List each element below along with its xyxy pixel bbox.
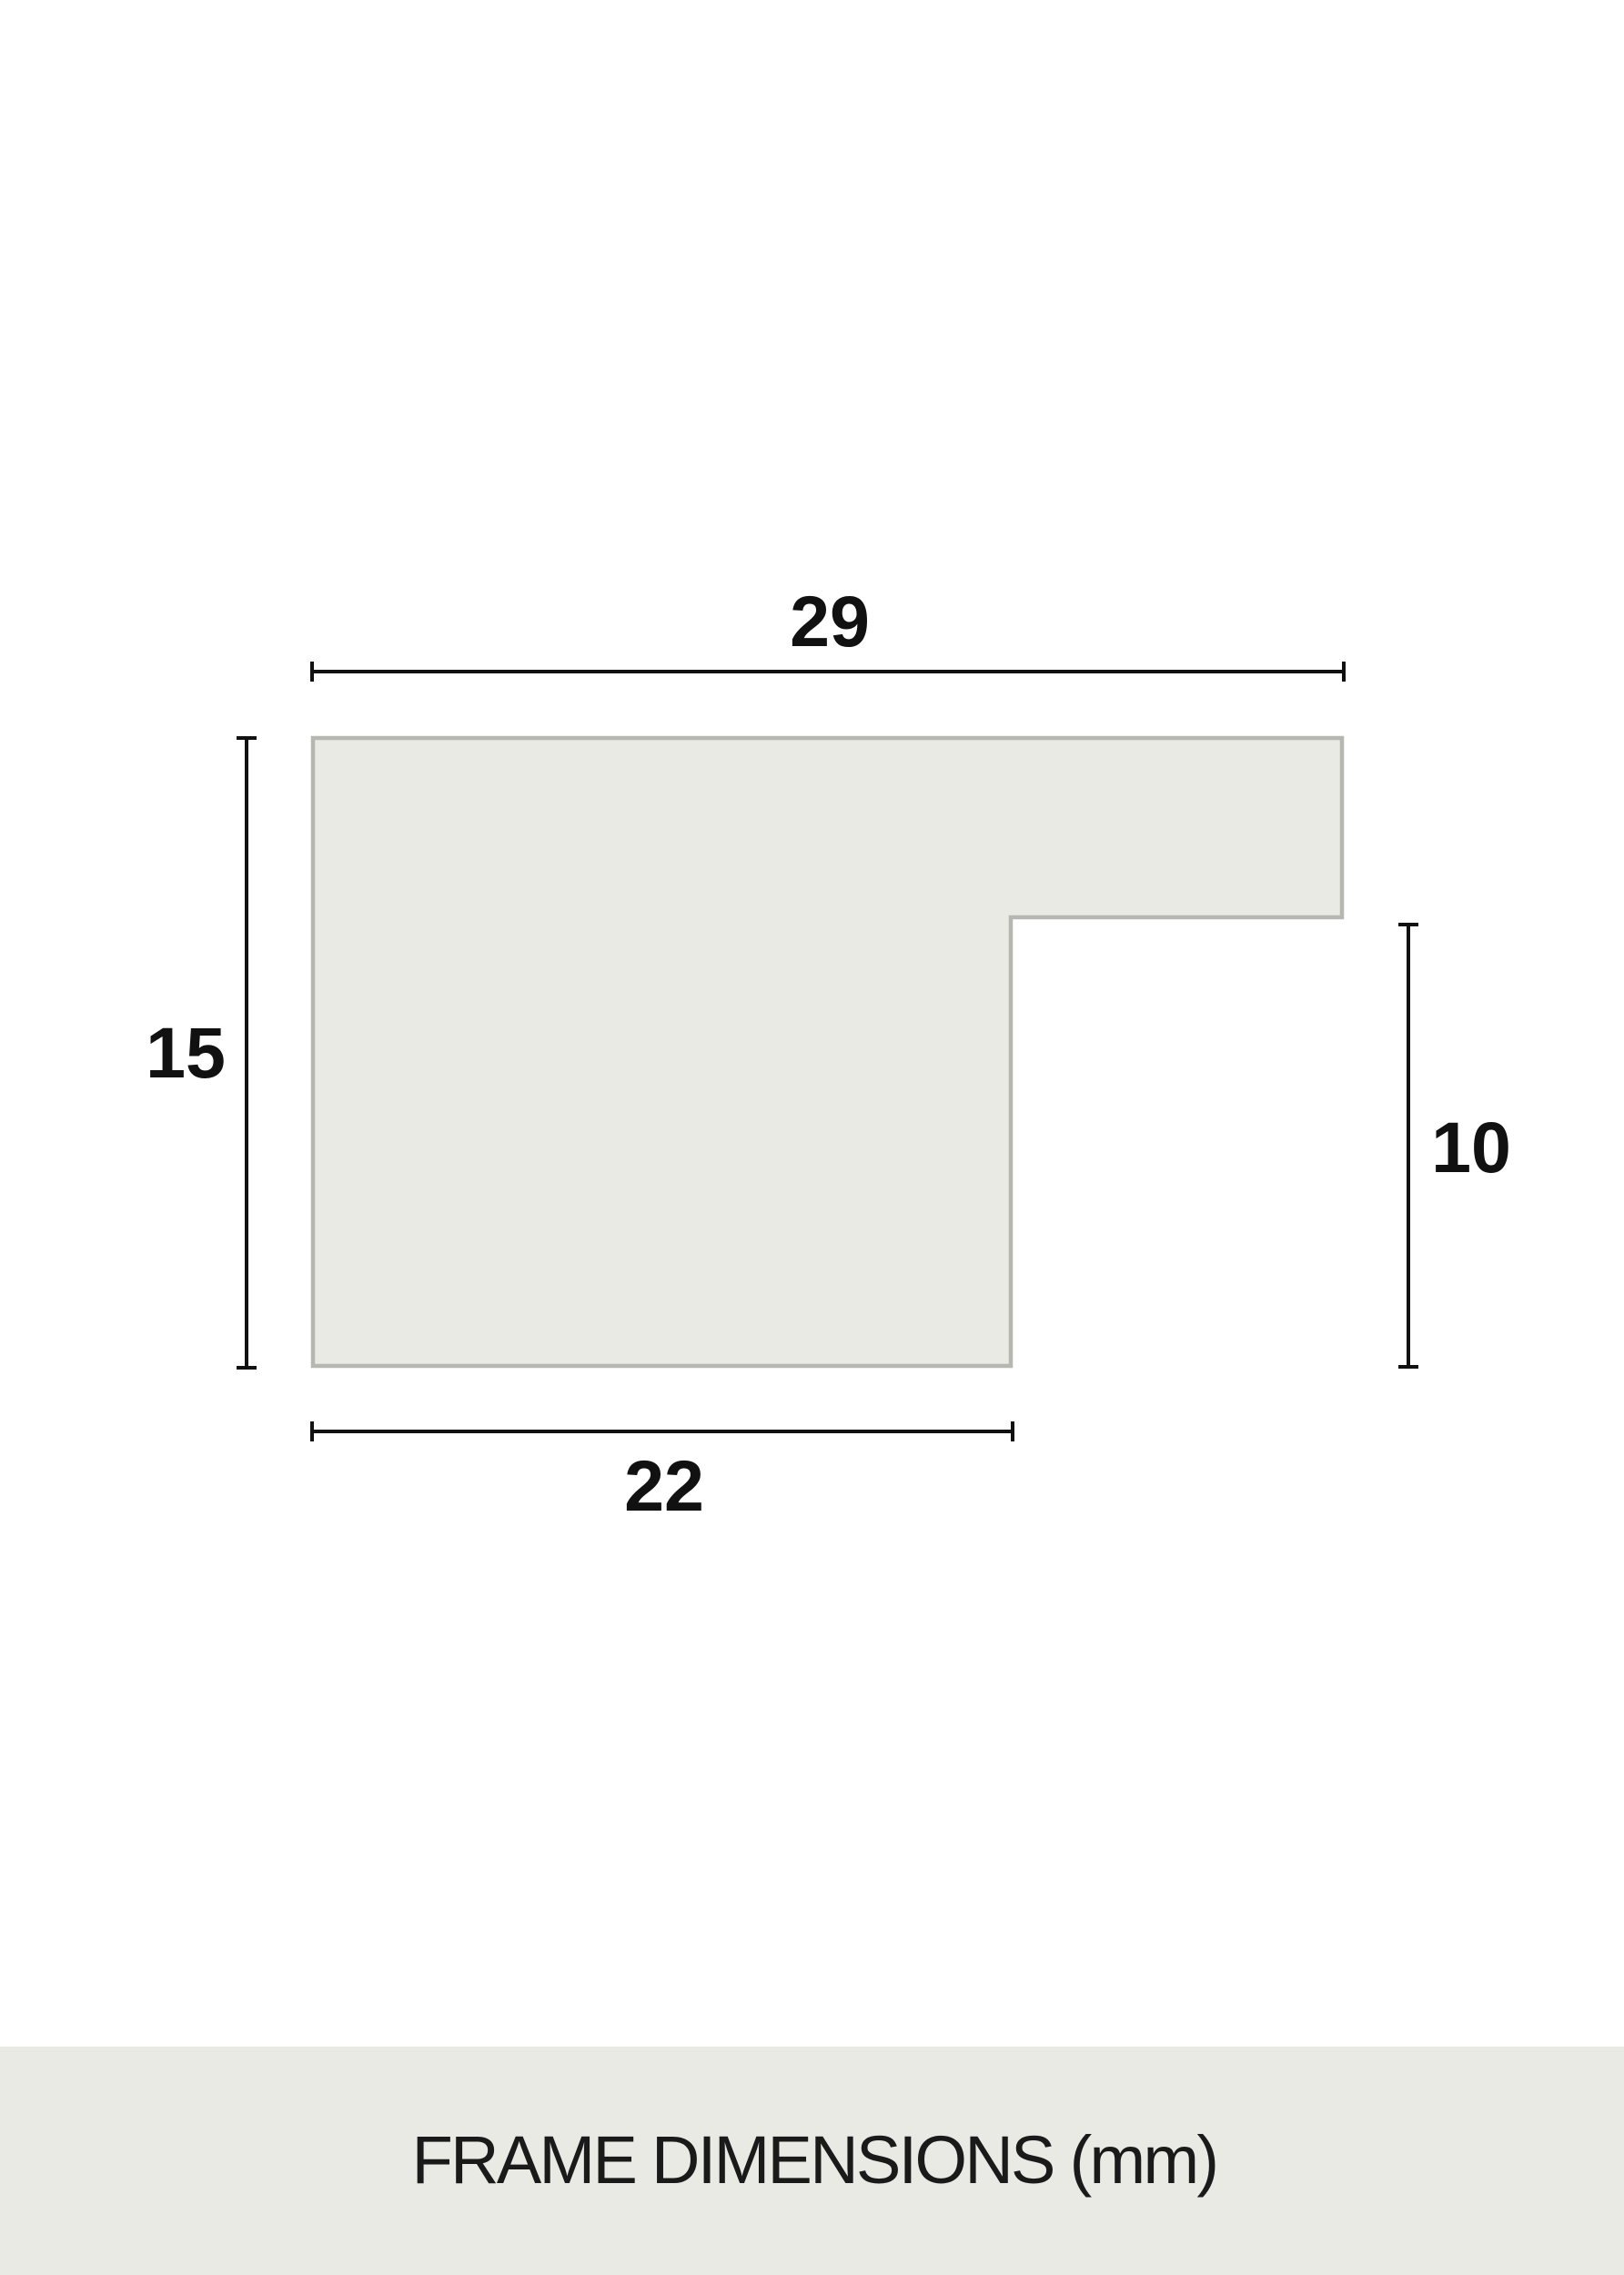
svg-text:FRAME DIMENSIONS (mm): FRAME DIMENSIONS (mm) bbox=[412, 2122, 1217, 2198]
svg-text:29: 29 bbox=[790, 581, 870, 662]
svg-text:22: 22 bbox=[624, 1445, 704, 1526]
svg-text:10: 10 bbox=[1431, 1107, 1511, 1188]
svg-text:15: 15 bbox=[146, 1012, 226, 1093]
